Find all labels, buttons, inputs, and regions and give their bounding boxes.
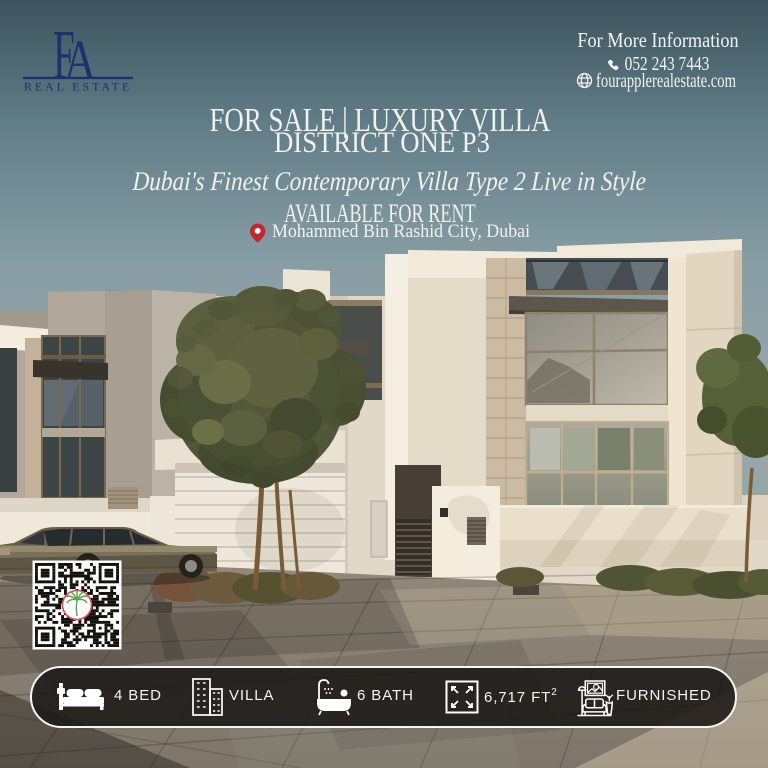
- svg-text:For More Information: For More Information: [577, 29, 738, 52]
- svg-text:fourapplerealestate.com: fourapplerealestate.com: [596, 70, 736, 91]
- svg-text:REAL ESTATE: REAL ESTATE: [24, 80, 132, 94]
- svg-text:Mohammed Bin Rashid City, Duba: Mohammed Bin Rashid City, Dubai: [272, 220, 530, 242]
- svg-text:Dubai's Finest Contemporary Vi: Dubai's Finest Contemporary Villa Type 2…: [131, 167, 647, 196]
- svg-text:DISTRICT ONE P3: DISTRICT ONE P3: [274, 127, 490, 160]
